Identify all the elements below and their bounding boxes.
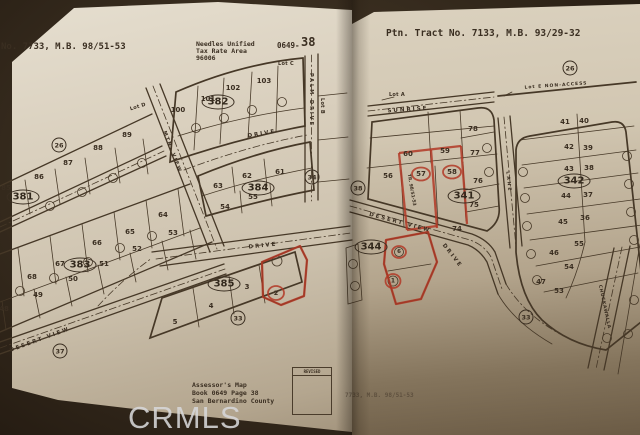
block-label-383: 383 — [64, 258, 97, 273]
parcel-number-50: 50 — [68, 275, 78, 283]
parcel-number-39: 39 — [583, 144, 593, 152]
parcel-number-38: 38 — [584, 164, 594, 172]
left-header-tract-number: No. 7733, M.B. 98/51-53 — [1, 42, 126, 52]
parcel-number-88: 88 — [93, 144, 103, 152]
lot-b-label: Lot B — [319, 98, 325, 114]
parcel-number-74: 74 — [452, 225, 462, 233]
parcel-number-67: 67 — [55, 260, 65, 268]
ref-circle-26-right: 26 — [563, 61, 578, 76]
parcel-number-60: 60 — [403, 150, 413, 158]
parcel-number-54-right: 54 — [564, 263, 574, 271]
parcel-number-40: 40 — [579, 117, 589, 125]
tax-district-line3: 96006 — [196, 54, 216, 62]
parcel-number-101: 101 — [201, 95, 216, 103]
parcel-number-1-highlighted: 1 — [391, 278, 395, 285]
parcel-number-103: 103 — [257, 77, 272, 85]
parcel-number-66: 66 — [92, 239, 102, 247]
parcel-number-85: 85 — [1, 184, 11, 192]
parcel-number-55-left: 55 — [248, 193, 258, 201]
parcel-number-6-highlighted: 6 — [397, 249, 401, 255]
revised-stamp-box: REVISED — [292, 367, 332, 415]
parcel-number-52: 52 — [132, 245, 142, 253]
parcel-number-75: 75 — [469, 201, 479, 209]
parcel-number-45: 45 — [558, 218, 568, 226]
parcel-number-44: 44 — [561, 192, 571, 200]
parcel-number-54-left: 54 — [220, 203, 230, 211]
assessor-map-photo: No. 7733, M.B. 98/51-53 Needles Unified … — [0, 0, 640, 435]
parcel-number-77: 77 — [470, 149, 480, 157]
crmls-watermark: CRMLS — [128, 400, 242, 435]
parcel-number-102: 102 — [226, 84, 241, 92]
fold-note-text: 7733, M.B. 98/51-53 — [345, 392, 414, 399]
street-label-palm-drive: PALM DRIVE — [308, 73, 314, 127]
block-label-381: 381 — [7, 190, 40, 205]
parcel-number-100: 100 — [171, 106, 186, 114]
footer-map-title: Assessor's Map — [192, 381, 247, 389]
parcel-number-62: 62 — [242, 172, 252, 180]
ref-circle-34: 34 — [305, 170, 320, 185]
parcel-number-5: 5 — [173, 318, 178, 326]
block-label-342: 342 — [558, 174, 591, 189]
parcel-number-46: 46 — [549, 249, 559, 257]
lot-c-label: Lot C — [278, 61, 294, 67]
parcel-number-59: 59 — [440, 147, 450, 155]
parcel-number-4: 4 — [209, 302, 214, 310]
parcel-number-64: 64 — [158, 211, 168, 219]
ref-circle-33-right: 33 — [519, 310, 534, 325]
parcel-number-78: 78 — [468, 125, 478, 133]
ref-circle-38: 38 — [351, 181, 366, 196]
lot-a-label: Lot A — [389, 92, 405, 98]
parcel-number-49: 49 — [33, 291, 43, 299]
parcel-number-53: 53 — [554, 287, 564, 295]
revised-label: REVISED — [293, 368, 331, 376]
block-label-344: 344 — [355, 240, 388, 255]
parcel-number-89: 89 — [122, 131, 132, 139]
block-label-385: 385 — [208, 277, 241, 292]
sheet-number: 38 — [301, 35, 315, 49]
parcel-number-55-right: 55 — [574, 240, 584, 248]
parcel-number-56: 56 — [383, 172, 393, 180]
parcel-number-43: 43 — [564, 165, 574, 173]
parcel-number-86: 86 — [34, 173, 44, 181]
parcel-number-41: 41 — [560, 118, 570, 126]
parcel-number-63: 63 — [213, 182, 223, 190]
right-header-tract-number: Ptn. Tract No. 7133, M.B. 93/29-32 — [386, 28, 580, 39]
ref-circle-37: 37 — [53, 344, 68, 359]
ref-circle-33-left: 33 — [231, 311, 246, 326]
parcel-number-42: 42 — [564, 143, 574, 151]
footer-book-page: Book 0649 Page 38 — [192, 389, 259, 397]
parcel-number-37: 37 — [583, 191, 593, 199]
parcel-number-3: 3 — [245, 283, 250, 291]
parcel-number-48: 48 — [0, 305, 9, 313]
parcel-number-53: 53 — [168, 229, 178, 237]
ref-circle-26-left: 26 — [52, 138, 67, 153]
parcel-number-65: 65 — [125, 228, 135, 236]
parcel-number-68: 68 — [27, 273, 37, 281]
parcel-number-2-highlighted: 2 — [274, 289, 279, 297]
parcel-number-76: 76 — [473, 177, 483, 185]
parcel-number-58-highlighted: 58 — [447, 168, 457, 176]
parcel-number-36: 36 — [580, 214, 590, 222]
parcel-number-87: 87 — [63, 159, 73, 167]
parcel-number-57-highlighted: 57 — [416, 170, 426, 178]
parcel-number-61: 61 — [275, 168, 285, 176]
parcel-number-47: 47 — [536, 278, 546, 286]
book-prefix: 0649- — [277, 41, 300, 50]
parcel-number-51: 51 — [99, 260, 109, 268]
